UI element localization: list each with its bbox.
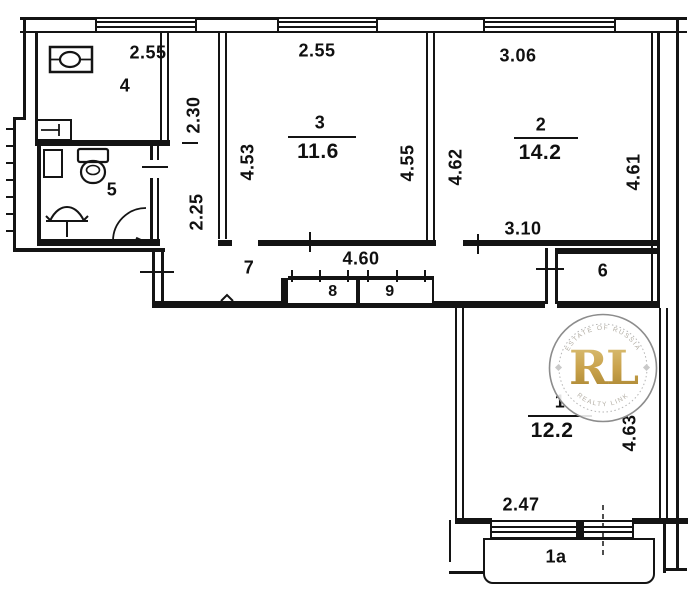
fixtures-layer: ESTATE OF RUSSIA REALTY LINK RL (0, 0, 690, 600)
stove-icon (50, 47, 92, 72)
watermark-initials: RL (569, 341, 639, 396)
cabinet-icon (44, 150, 62, 177)
washbasin-icon (37, 120, 71, 140)
floor-plan: 2.55 4 2.30 2.55 3 11.6 4.53 4.55 3.06 2… (0, 0, 690, 600)
door-arc (113, 208, 147, 243)
toilet-icon (78, 149, 108, 183)
wall-notch (221, 295, 233, 301)
sink-icon (46, 207, 88, 237)
watermark-badge: ESTATE OF RUSSIA REALTY LINK RL (550, 315, 657, 422)
